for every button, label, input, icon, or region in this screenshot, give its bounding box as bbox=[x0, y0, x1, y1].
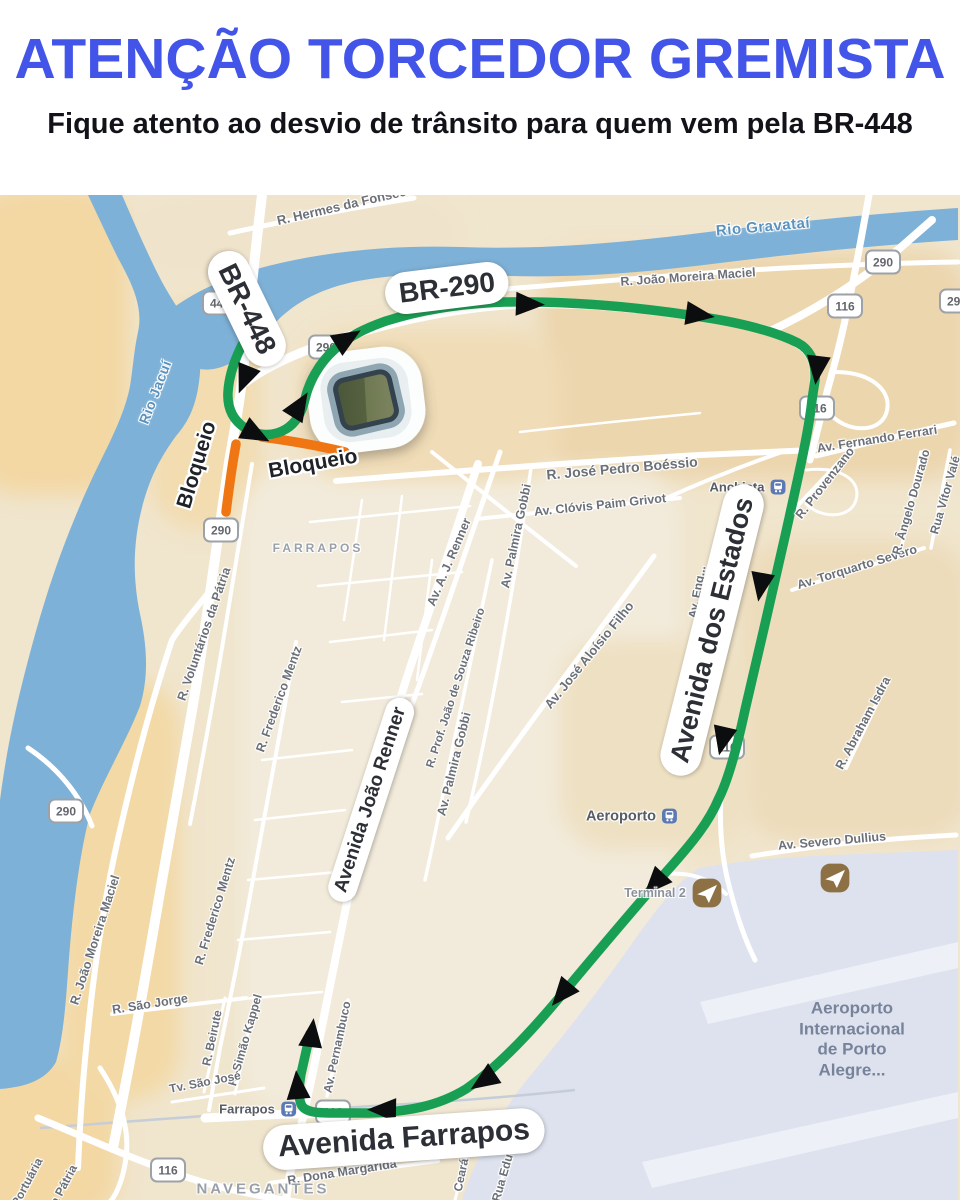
road-shield: 116 bbox=[151, 1159, 185, 1182]
page-subtitle: Fique atento ao desvio de trânsito para … bbox=[0, 108, 960, 141]
svg-text:290: 290 bbox=[947, 295, 960, 309]
road-shield: 290 bbox=[49, 800, 83, 823]
road bbox=[172, 1088, 264, 1102]
map-canvas: 448290290290116116116116290290116 R. Her… bbox=[0, 195, 960, 1200]
terrain-patch bbox=[540, 250, 960, 480]
road-shield: 290 bbox=[204, 519, 238, 542]
page-title: ATENÇÃO TORCEDOR GREMISTA bbox=[0, 26, 960, 92]
map-graphic: 448290290290116116116116290290116 bbox=[0, 195, 960, 1200]
header: ATENÇÃO TORCEDOR GREMISTA Fique atento a… bbox=[0, 0, 960, 195]
road-shield: 290 bbox=[866, 251, 900, 274]
svg-text:448: 448 bbox=[210, 297, 230, 311]
road-shield: 448 bbox=[203, 292, 237, 315]
svg-text:290: 290 bbox=[56, 805, 76, 819]
svg-text:290: 290 bbox=[873, 256, 893, 270]
svg-text:116: 116 bbox=[835, 300, 855, 314]
svg-text:116: 116 bbox=[158, 1164, 178, 1178]
infographic: 448290290290116116116116290290116 R. Her… bbox=[0, 0, 960, 1200]
svg-text:290: 290 bbox=[211, 524, 231, 538]
road-shield: 290 bbox=[940, 290, 960, 313]
road-shield: 116 bbox=[828, 295, 862, 318]
